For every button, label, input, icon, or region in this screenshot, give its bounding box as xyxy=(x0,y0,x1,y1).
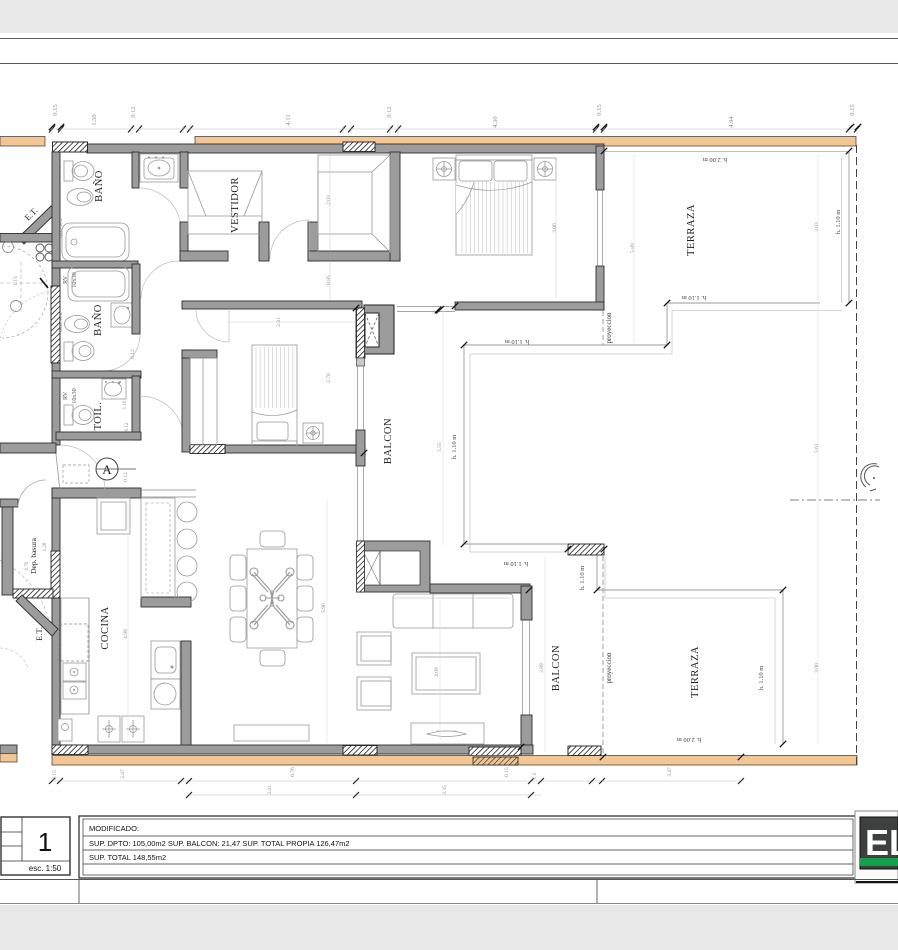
svg-text:TERRAZA: TERRAZA xyxy=(686,204,697,256)
svg-text:1: 1 xyxy=(38,827,52,857)
svg-text:RV: RV xyxy=(62,391,69,400)
svg-text:3.09: 3.09 xyxy=(434,667,440,677)
svg-text:1.28: 1.28 xyxy=(43,542,48,551)
svg-text:6.76: 6.76 xyxy=(290,767,296,777)
svg-text:4.94: 4.94 xyxy=(728,116,735,128)
svg-text:BAÑO: BAÑO xyxy=(92,304,104,336)
svg-text:Dep. basura: Dep. basura xyxy=(29,537,38,573)
svg-text:2.47: 2.47 xyxy=(120,769,126,779)
svg-text:2.78: 2.78 xyxy=(326,373,332,383)
svg-text:0.15: 0.15 xyxy=(849,104,856,115)
svg-text:cond. vent.: cond. vent. xyxy=(58,312,63,332)
svg-text:h. 1.10 m: h. 1.10 m xyxy=(682,294,707,301)
svg-text:cond. vent.: cond. vent. xyxy=(58,218,63,238)
svg-text:COCINA: COCINA xyxy=(100,606,111,649)
svg-text:h. 1.10 m: h. 1.10 m xyxy=(504,560,529,567)
svg-text:SUP. DPTO: 105,00m2 SUP. BALCO: SUP. DPTO: 105,00m2 SUP. BALCON: 21,47 S… xyxy=(89,839,350,848)
svg-text:h. 1.10 m: h. 1.10 m xyxy=(758,666,765,691)
svg-text:esc. 1:50: esc. 1:50 xyxy=(29,864,62,873)
svg-text:BALCON: BALCON xyxy=(383,418,394,464)
svg-text:3.00: 3.00 xyxy=(814,663,820,673)
svg-text:3.03: 3.03 xyxy=(814,222,820,232)
svg-text:h. 2.00 m: h. 2.00 m xyxy=(703,156,728,163)
svg-text:0.12: 0.12 xyxy=(130,349,136,359)
svg-text:5.61: 5.61 xyxy=(814,443,820,453)
svg-text:h. 2.00 m: h. 2.00 m xyxy=(677,736,702,743)
svg-text:0.12: 0.12 xyxy=(125,422,130,431)
svg-text:0.15: 0.15 xyxy=(52,104,59,115)
svg-text:3.35: 3.35 xyxy=(442,785,448,795)
svg-text:1.50: 1.50 xyxy=(91,114,98,125)
svg-text:3.41: 3.41 xyxy=(267,785,273,795)
svg-text:1.15: 1.15 xyxy=(13,276,19,286)
svg-text:BALCON: BALCON xyxy=(551,645,562,691)
svg-text:MODIFICADO:: MODIFICADO: xyxy=(89,824,139,833)
svg-text:0.85: 0.85 xyxy=(326,275,332,285)
svg-text:proyeccion: proyeccion xyxy=(605,312,613,344)
svg-text:h. 1.10 m: h. 1.10 m xyxy=(451,435,458,460)
svg-text:TOIL.: TOIL. xyxy=(93,402,104,431)
svg-text:4.30: 4.30 xyxy=(492,116,499,127)
svg-text:0.12: 0.12 xyxy=(130,106,137,117)
svg-text:BAÑO: BAÑO xyxy=(93,170,105,202)
svg-text:TERRAZA: TERRAZA xyxy=(690,646,701,698)
svg-text:h. 1.10 m: h. 1.10 m xyxy=(835,210,842,235)
svg-text:5.90: 5.90 xyxy=(321,603,327,613)
svg-text:0.15: 0.15 xyxy=(504,767,510,777)
svg-text:5.55: 5.55 xyxy=(437,442,443,452)
svg-text:3.89: 3.89 xyxy=(539,663,545,673)
svg-text:SUP. TOTAL 148,55m2: SUP. TOTAL 148,55m2 xyxy=(89,853,166,862)
svg-text:0.15: 0.15 xyxy=(596,104,603,115)
svg-text:0.12: 0.12 xyxy=(386,106,393,117)
svg-text:10x30: 10x30 xyxy=(71,388,78,403)
svg-text:3.47: 3.47 xyxy=(667,767,673,777)
svg-text:1.10: 1.10 xyxy=(123,400,128,409)
svg-text:E.T.: E.T. xyxy=(34,627,44,641)
svg-text:3.00: 3.00 xyxy=(552,223,558,233)
svg-text:2.03: 2.03 xyxy=(326,195,332,205)
svg-text:0.12: 0.12 xyxy=(123,472,129,482)
svg-text:proyeccion: proyeccion xyxy=(605,652,613,684)
svg-text:0.15: 0.15 xyxy=(52,770,58,780)
svg-text:EL: EL xyxy=(865,822,898,863)
svg-text:1.5: 1.5 xyxy=(532,772,538,779)
svg-text:0.70: 0.70 xyxy=(25,561,30,570)
svg-text:4.11: 4.11 xyxy=(285,114,292,125)
svg-text:A: A xyxy=(102,462,112,477)
svg-text:h. 1.10 m: h. 1.10 m xyxy=(579,566,586,591)
svg-text:5.89: 5.89 xyxy=(630,243,636,253)
svg-text:h. 1.10 m: h. 1.10 m xyxy=(505,338,530,345)
svg-text:VESTIDOR: VESTIDOR xyxy=(230,177,241,233)
